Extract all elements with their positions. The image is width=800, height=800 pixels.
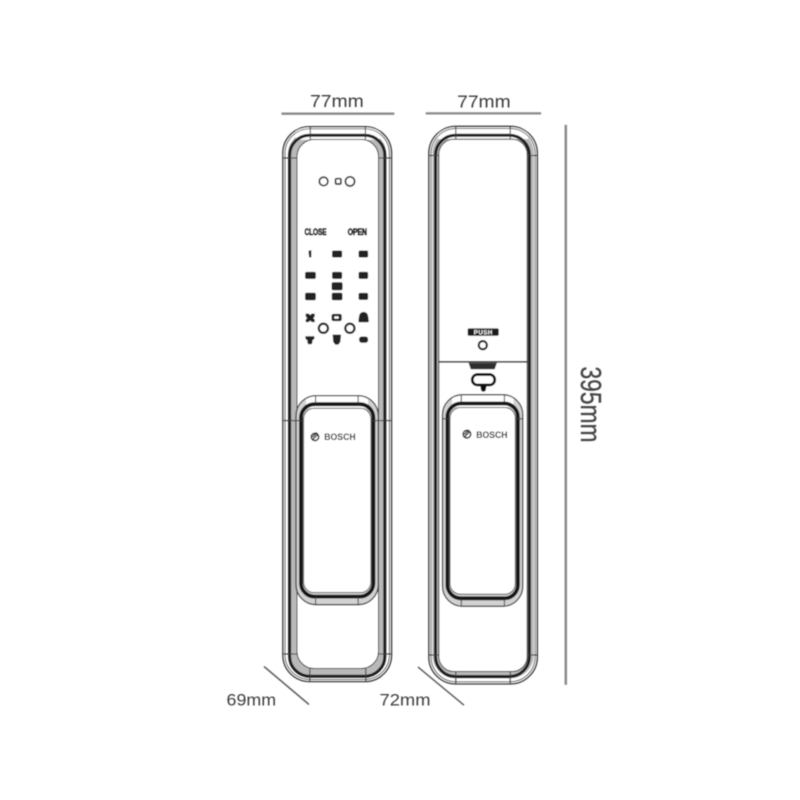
- svg-text:PUSH: PUSH: [474, 329, 493, 336]
- svg-text:395mm: 395mm: [574, 367, 606, 443]
- svg-text:BOSCH: BOSCH: [324, 432, 356, 442]
- svg-text:CLOSE: CLOSE: [305, 227, 327, 237]
- svg-text:69mm: 69mm: [227, 691, 277, 710]
- svg-text:OPEN: OPEN: [348, 227, 367, 237]
- svg-text:77mm: 77mm: [457, 92, 511, 112]
- svg-text:BOSCH: BOSCH: [476, 430, 508, 440]
- svg-text:77mm: 77mm: [310, 91, 364, 111]
- svg-text:72mm: 72mm: [380, 691, 431, 710]
